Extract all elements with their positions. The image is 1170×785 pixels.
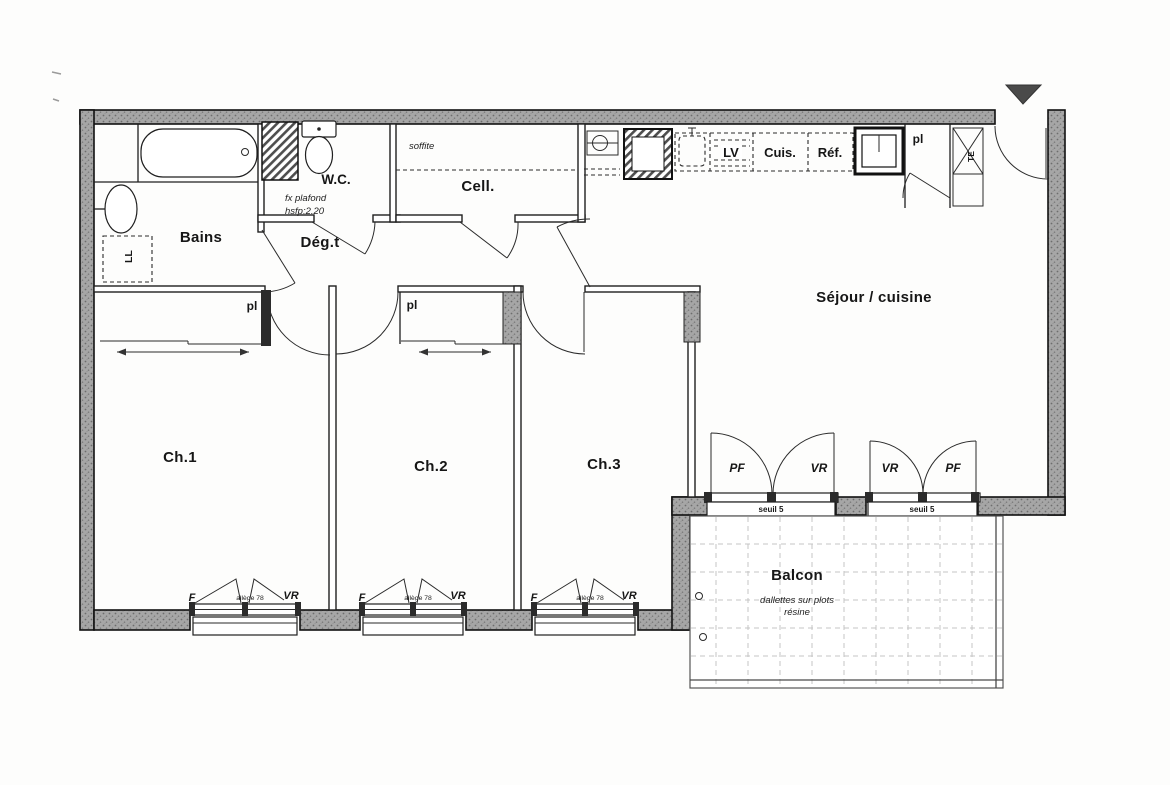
entrance-marker-icon [1006, 85, 1041, 104]
room-label-ch1: Ch.1 [163, 449, 197, 466]
closet-label-ch2: pl [407, 298, 418, 312]
door-leaf-sejour [557, 227, 590, 287]
window-ch3: F allège 78 VR [531, 579, 639, 635]
room-label-bains: Bains [180, 229, 222, 246]
door-arc-ch2 [336, 292, 398, 354]
sink [679, 136, 705, 166]
shutter-label: VR [811, 461, 828, 475]
soffit-label: soffite [409, 141, 434, 152]
door-arc-entrance [995, 126, 1048, 179]
kitchen-fixtures: LV Cuis. Réf. [584, 128, 903, 179]
interior-walls [94, 124, 700, 610]
door-arc-ch1 [267, 292, 330, 355]
electrical-panel-label: TE [966, 151, 976, 162]
window-label: F [531, 592, 538, 604]
threshold-label: seuil 5 [910, 505, 935, 514]
cooker-label: Cuis. [764, 145, 796, 160]
sill-height-label: allège 78 [576, 595, 604, 602]
balcony-note: résine [784, 607, 810, 618]
shutter-label: VR [882, 461, 899, 475]
window-label: F [189, 592, 196, 604]
duct-shaft-bathroom [262, 122, 298, 180]
bathtub [141, 129, 257, 177]
french-door-2: VR PF seuil 5 [865, 441, 980, 516]
false-ceiling-height: hsfp:2.20 [285, 206, 325, 217]
fridge-label: Réf. [818, 145, 843, 160]
room-label-balcon: Balcon [771, 567, 823, 584]
closet-label-entry: pl [913, 132, 924, 146]
room-label-sejour: Séjour / cuisine [816, 289, 932, 306]
room-label-cellier: Cell. [461, 178, 494, 195]
door-leaf-cellier [460, 222, 507, 258]
shutter-label: VR [621, 590, 636, 602]
washer-label: LL [123, 250, 135, 263]
toilet-bowl [306, 137, 333, 174]
balcony-note: dallettes sur plots [760, 595, 834, 606]
door-leaf-bains [262, 230, 295, 283]
closets [100, 290, 503, 356]
window-ch2: F allège 78 VR [359, 579, 467, 635]
window-label: F [359, 592, 366, 604]
room-label-wc: W.C. [321, 172, 350, 187]
threshold-label: seuil 5 [759, 505, 784, 514]
floor-plan-page: LV Cuis. Réf. TE [0, 0, 1170, 785]
sill-height-label: allège 78 [404, 595, 432, 602]
scan-marks [52, 72, 61, 101]
room-label-degagement: Dég.t [301, 234, 340, 251]
french-door-1: PF VR seuil 5 [704, 433, 838, 516]
french-window-label: PF [729, 461, 745, 475]
false-ceiling-note: fx plafond [285, 193, 327, 204]
room-label-ch3: Ch.3 [587, 456, 621, 473]
door-arc-ch3 [523, 292, 585, 354]
closet-door-leaf [910, 173, 950, 198]
balcony [690, 516, 1003, 688]
french-window-label: PF [945, 461, 961, 475]
floor-plan: LV Cuis. Réf. TE [0, 0, 1170, 785]
washbasin [105, 185, 137, 233]
window-ch1: F allège 78 VR [189, 579, 301, 635]
dishwasher-label: LV [723, 145, 739, 160]
room-label-ch2: Ch.2 [414, 458, 448, 475]
closet-label-ch1: pl [247, 299, 258, 313]
sill-height-label: allège 78 [236, 595, 264, 602]
shutter-label: VR [283, 590, 298, 602]
shutter-label: VR [450, 590, 465, 602]
